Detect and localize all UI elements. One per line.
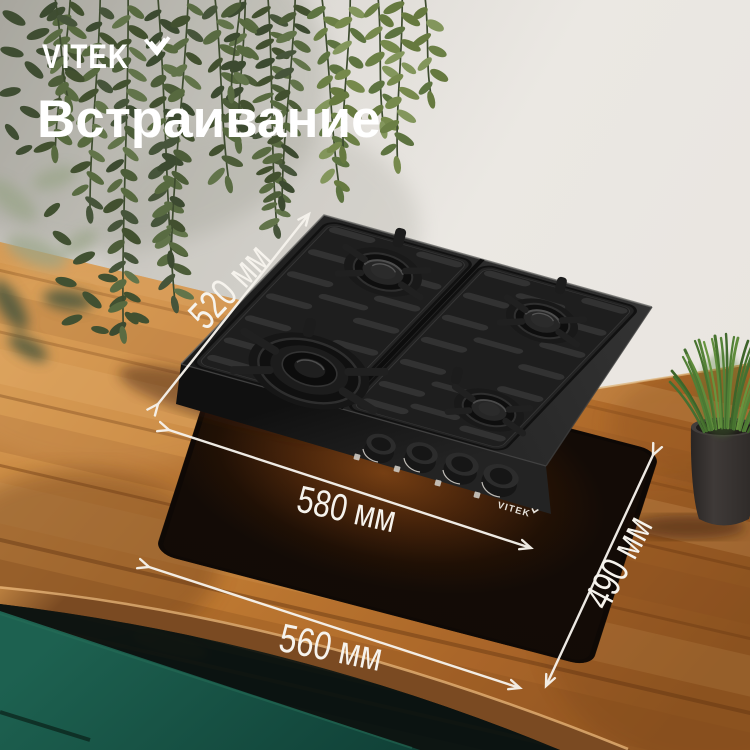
svg-text:VITEK: VITEK: [42, 38, 129, 76]
svg-text:Встраивание: Встраивание: [37, 90, 381, 149]
